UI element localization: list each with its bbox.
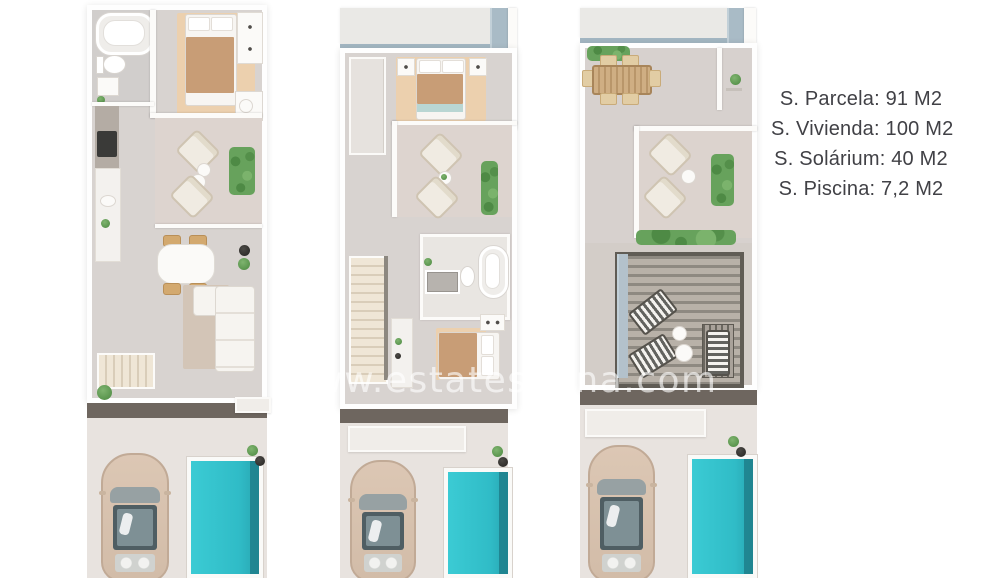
dining-chair (163, 283, 181, 295)
floorplan-ground-floor (87, 5, 267, 578)
bed-pillow (188, 17, 210, 31)
pool-plant (492, 446, 503, 457)
outdoor-chair (600, 93, 617, 105)
bed-pillow (442, 60, 464, 73)
divider-wall (717, 48, 722, 110)
floorplan-solarium (580, 8, 760, 578)
outdoor-dining-table (592, 65, 652, 95)
bed-blanket (186, 37, 234, 93)
roof-band (340, 8, 492, 44)
pool-plant (247, 445, 258, 456)
lounge-bush (711, 154, 734, 206)
entry-canopy (585, 409, 706, 437)
car-windshield (359, 494, 407, 510)
desk-chair (239, 99, 253, 113)
swimming-pool (187, 457, 263, 578)
pool-plant (728, 436, 739, 447)
car-rear-seats (602, 554, 641, 572)
wardrobe (237, 12, 263, 64)
toilet (103, 55, 126, 74)
deck-table (672, 326, 687, 341)
lounge-table (681, 169, 696, 184)
bed-pillow (211, 17, 233, 31)
swimming-pool (688, 455, 757, 578)
shelf (726, 88, 742, 91)
planter-hedge (229, 147, 255, 195)
spec-piscina: S. Piscina: 7,2 M2 (771, 174, 951, 204)
pool-shadow-edge (250, 461, 259, 574)
bed-throw (417, 104, 463, 112)
bathroom-plant (424, 258, 432, 266)
entry-canopy (348, 426, 466, 452)
terrace-table-plant (441, 174, 447, 180)
pool-plant-pot (498, 457, 508, 467)
pool-plant-pot (736, 447, 746, 457)
pool-plant-pot (255, 456, 265, 466)
wardrobe (480, 314, 505, 331)
kitchen-plant (101, 219, 110, 228)
solarium-plant (730, 74, 741, 85)
car-windshield (110, 487, 160, 503)
floorplan-marketing-image: S. Parcela: 91 M2 S. Vivienda: 100 M2 S.… (0, 0, 1000, 578)
car-mirror (164, 491, 171, 495)
dining-table (157, 244, 215, 284)
pool-shadow-edge (744, 459, 753, 574)
car-roof (362, 512, 404, 550)
nightstand (397, 58, 415, 76)
closet (349, 57, 386, 155)
bathtub (479, 246, 508, 298)
bed-pillow (419, 60, 441, 73)
bed-blanket (417, 74, 463, 104)
kitchen-sink (100, 195, 116, 207)
roof-band (580, 8, 729, 38)
car-roof (600, 497, 643, 550)
car (350, 460, 416, 578)
plant-pot (238, 258, 250, 270)
outdoor-chair (649, 70, 661, 87)
car-mirror (348, 498, 355, 502)
toilet (460, 266, 475, 287)
kitchen-stove (97, 131, 117, 157)
property-specs: S. Parcela: 91 M2 S. Vivienda: 100 M2 S.… (771, 84, 951, 204)
roof-side-edge (727, 8, 744, 43)
facade-band (340, 409, 508, 423)
car-rear-seats (115, 554, 155, 572)
bathtub (96, 13, 154, 55)
spec-vivienda: S. Vivienda: 100 M2 (771, 114, 951, 144)
bathtub-basin (103, 20, 145, 46)
car-roof (113, 505, 157, 550)
deck-hedge (636, 230, 736, 245)
car (588, 445, 655, 578)
car-windshield (597, 479, 646, 495)
plant-pot (239, 245, 250, 256)
car-mirror (586, 483, 593, 487)
cabinet-plant (395, 338, 402, 345)
swimming-pool (444, 468, 512, 578)
floorplan-first-floor (340, 8, 517, 578)
outer-wall (744, 8, 756, 43)
bed2-pillow (481, 335, 494, 355)
shower (425, 270, 460, 294)
watermark-url: www.estatespana.com (0, 360, 1000, 401)
bathroom-sink (97, 77, 119, 96)
terrace-hedge (481, 161, 498, 215)
car-mirror (99, 491, 106, 495)
spec-solarium: S. Solárium: 40 M2 (771, 144, 951, 174)
car (101, 453, 169, 578)
car-mirror (650, 483, 657, 487)
car-mirror (411, 498, 418, 502)
pool-shadow-edge (499, 472, 508, 574)
kitchen-lower-counter (95, 168, 121, 262)
spec-parcela: S. Parcela: 91 M2 (771, 84, 951, 114)
bathtub-basin (485, 253, 500, 289)
lounge-wall (155, 224, 262, 228)
nightstand (469, 58, 487, 76)
outdoor-chair (622, 93, 639, 105)
cabinet-item (395, 353, 401, 359)
car-rear-seats (364, 554, 402, 572)
